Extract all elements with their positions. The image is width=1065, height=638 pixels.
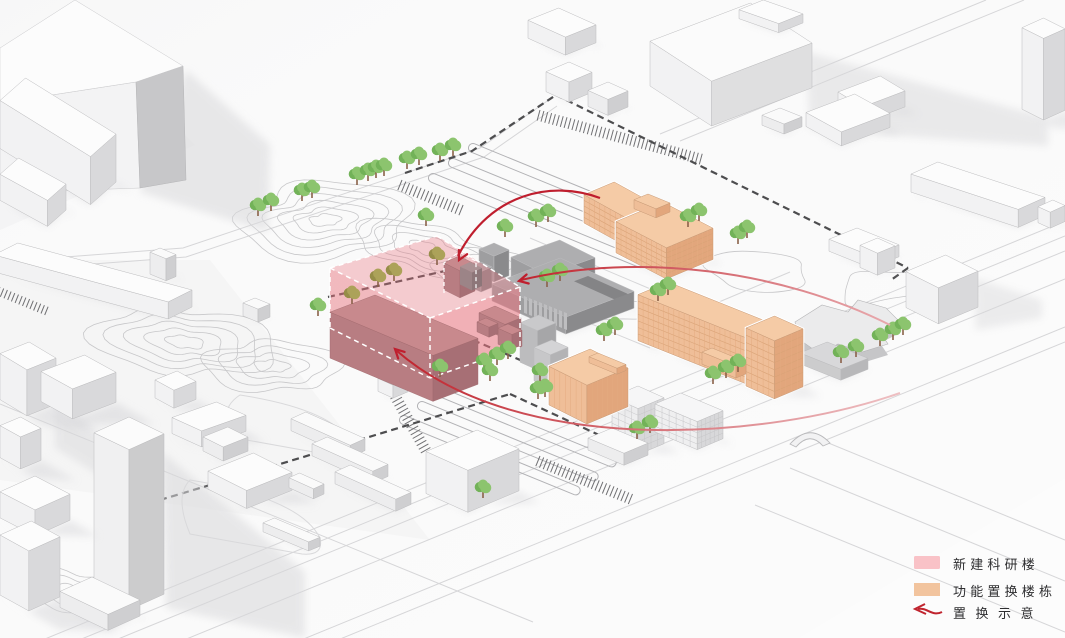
svg-text:置换示意: 置换示意 (953, 606, 1043, 621)
svg-text:新建科研楼: 新建科研楼 (953, 557, 1039, 572)
svg-text:功能置换楼栋: 功能置换楼栋 (953, 584, 1056, 599)
